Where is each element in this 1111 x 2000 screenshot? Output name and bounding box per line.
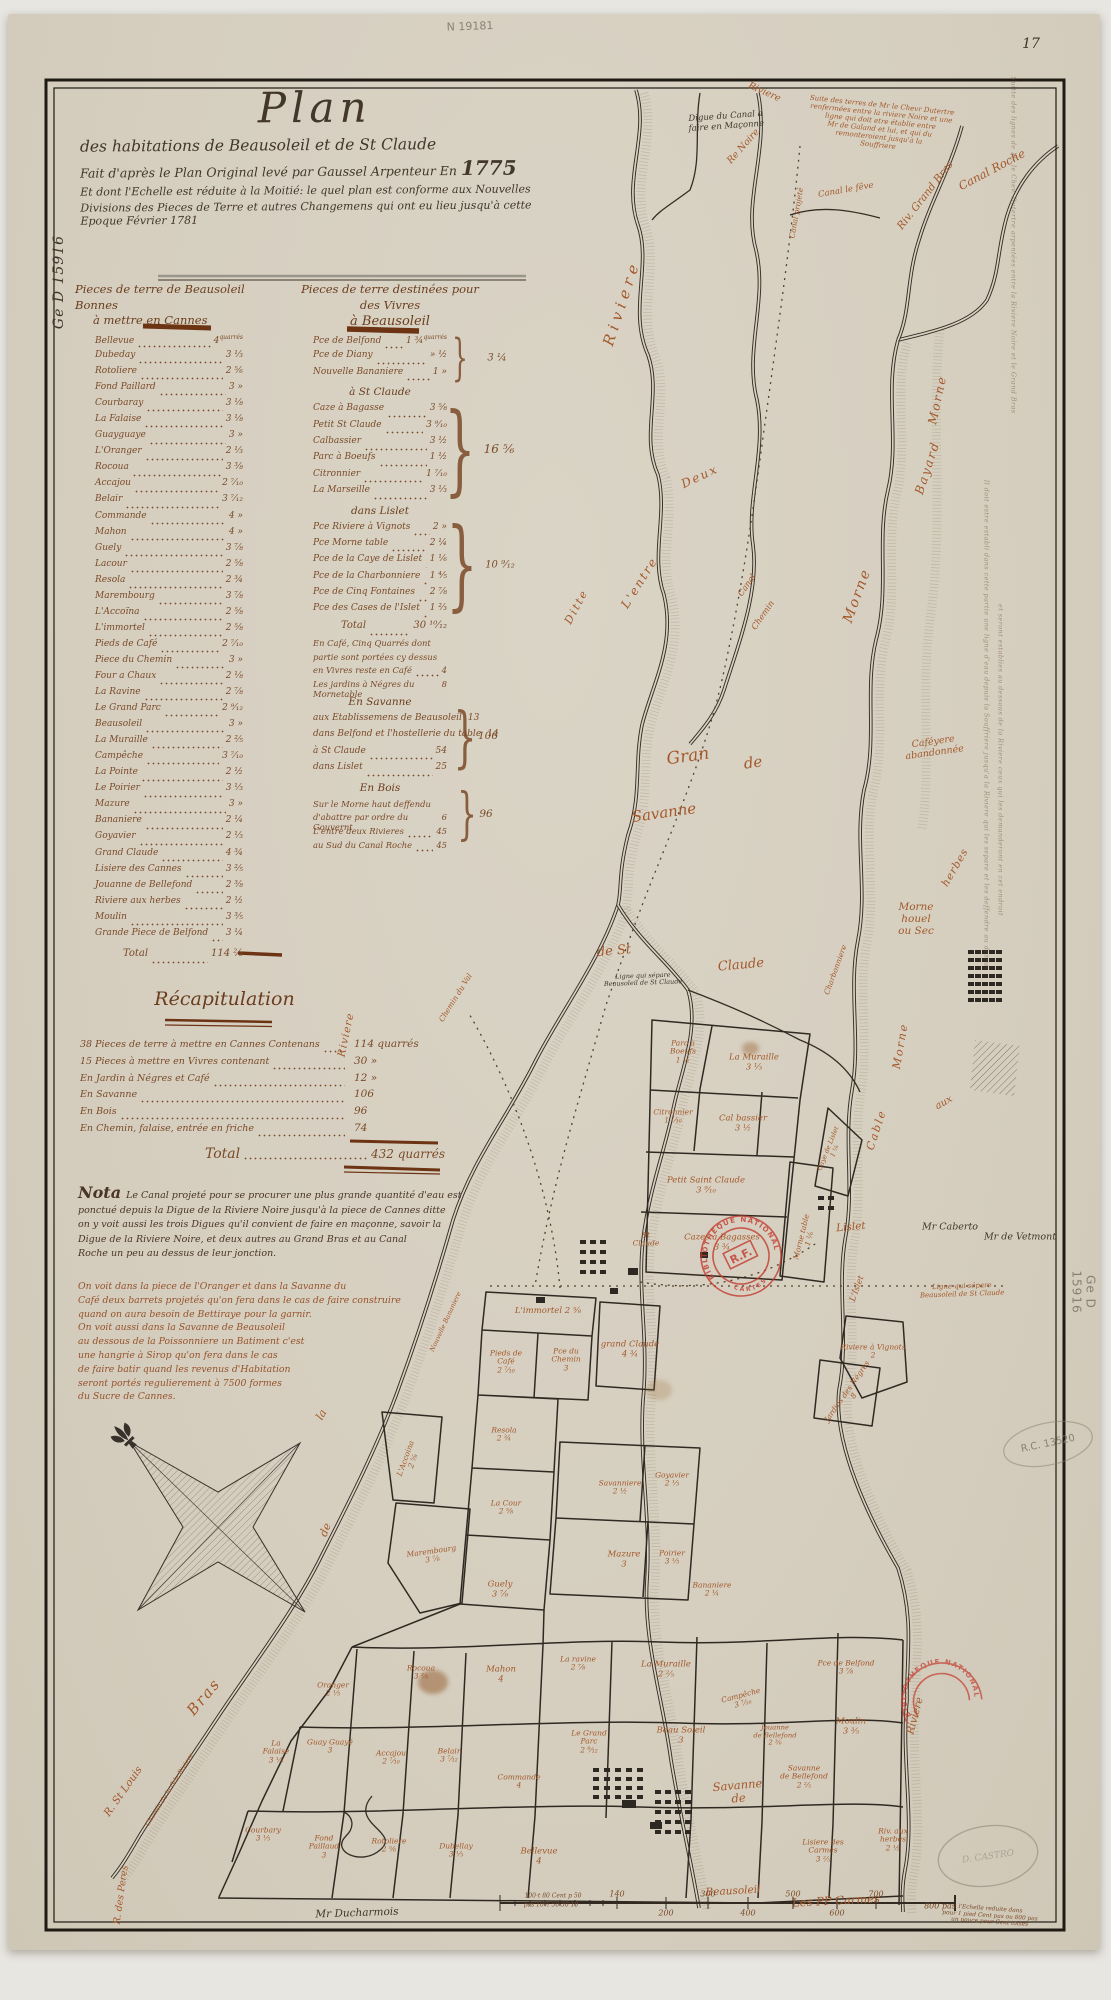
map-label: Savanniere 2 ½ [599,1480,642,1497]
map-label: Pce du Chemin 3 [551,1347,580,1372]
map-label: 300 [700,1889,715,1898]
map-label: 3 ¼ [487,352,506,363]
map-label: 500 [785,1889,800,1898]
map-label: Campêche 3 ⁷⁄₁₀ [720,1687,763,1714]
map-label: Deux [679,463,720,492]
map-label: Riviere [337,1012,358,1058]
map-label: L'Islet [849,1275,867,1304]
map-label: Ge D 15916 [1069,1270,1096,1313]
map-label: Canal le fêve [818,181,875,200]
map-label: Cazes à Bagasses 3 ¾ [684,1233,760,1252]
map-label: 96 [479,809,492,821]
page: { "meta":{"folio":"17","pencil_top":"N 1… [0,0,1111,2000]
map-label: l'Echelle reduite dans pour 1 pied Cent … [942,1903,1039,1929]
map-label: Morne table 1 ⅙ [792,1213,820,1262]
map-label: La Muraille 2 ⅖ [641,1660,691,1679]
map-label: Rocoua 3 ⅜ [407,1665,435,1682]
map-label: Ligne qui sépare Beausoleil de St Claude [920,1282,1005,1301]
map-label: de [318,1522,334,1539]
map-label: Belair 3 ⁷⁄₁₂ [438,1748,461,1765]
map-label: Il doit estre establi dans cette partie … [982,480,989,971]
map-label: Savanne de [712,1777,764,1807]
map-label: Re Noire [726,127,763,166]
map-label: Canal Roche [957,147,1028,193]
map-label: L'Accoina 2 ⅝ [396,1440,425,1481]
map-label: 200 [658,1908,673,1917]
map-label: Mr Caberto [922,1223,978,1234]
map-label: Ge D 15916 [52,235,68,329]
map-label: Canal [737,573,759,599]
map-label: de St [596,943,631,961]
map-label: Riviere [905,1696,926,1736]
map-label: R. St Louis [102,1765,145,1819]
map-label: Chemin du Val [438,972,475,1023]
map-label: Caye de Lislet 1 ⅙ [816,1126,847,1175]
map-label: Le Grand Parc 2 ⁹⁄₁₂ [571,1729,606,1754]
map-label: 400 [740,1908,755,1917]
map-label: 140 [609,1889,624,1898]
map-label: Pieds de Café 2 ⁷⁄₁₀ [490,1349,522,1374]
map-label: Bellevue 4 [520,1847,557,1866]
brace-glyph: } [457,790,477,840]
map-label: 600 [829,1908,844,1917]
map-label: Dubellay 3 ⅓ [439,1843,473,1860]
map-label: 100·t 80 Cent p 50 [525,1894,582,1901]
map-label: Pce de Belfond 3 ⅞ [818,1660,875,1677]
map-label: Morne [926,374,950,426]
map-labels: RiviereDitteL'entreDeuxRiviereRe NoireRi… [0,0,1111,2000]
map-label: Riviere à Vignots 2 [840,1344,905,1361]
map-label: Riv. aux herbes 2 ½ [878,1827,908,1852]
map-label: Ditte [563,587,592,626]
map-label: Poirier 3 ⅓ [659,1550,685,1567]
map-label: La Falaise 3 ⅛ [263,1739,290,1764]
map-label: 700 [868,1889,883,1898]
map-label: Morne [891,1022,911,1070]
map-label: Nouvelle Bananiere [429,1291,463,1353]
map-label: Caféyere abandonnée [903,733,964,762]
map-label: Oranger 2 ⅓ [317,1682,349,1699]
map-label: Riv. Grand Bras [896,159,957,232]
map-label: Lislet [836,1221,866,1235]
map-label: Beausoleil [705,1885,760,1900]
map-label: Guay Guayé 3 [307,1739,353,1756]
map-label: aux [933,1094,954,1113]
map-label: La ravine 2 ⅞ [560,1656,596,1673]
map-label: Fond Paillaud 3 [309,1834,339,1859]
map-label: Chemin [751,600,778,633]
map-label: Savanne de Bellefond 2 ⅖ [780,1764,828,1789]
map-label: et seront establies au dessous de la Riv… [996,604,1003,916]
map-label: Claude [717,957,764,976]
map-label: Commande 4 [497,1774,540,1791]
map-label: Lisiere des Carmes 3 ⅖ [802,1838,844,1863]
map-label: Ligne qui sépare Beausoleil de St Claude [604,971,683,988]
map-label: Savanne [631,800,698,826]
map-label: Morne [841,567,875,626]
brace-glyph: } [444,406,475,494]
map-label: de [743,753,764,772]
map-label: Chemin de la Gde Riviere [145,1752,196,1827]
map-label: Gran [665,745,710,770]
map-label: Mr Ducharmois [315,1907,399,1922]
map-label: 10 ⁹⁄₁₂ [485,559,515,570]
map-label: Bananiere 2 ¼ [693,1582,732,1599]
map-label: Cal bassier 3 ½ [719,1114,767,1133]
map-label: grand Claude 4 ¾ [601,1340,659,1359]
map-label: Les PP Carmes [792,1892,880,1910]
map-label: Cable [865,1108,890,1152]
brace-glyph: } [446,521,477,609]
map-label: R.C. 13520 [1020,1433,1076,1455]
map-label: 16 ⅚ [484,443,515,457]
map-label: Morne houel ou Sec [898,902,934,938]
map-label: Guely 3 ⅞ [488,1580,513,1599]
map-label: Accajou 2 ⁷⁄₁₀ [376,1750,406,1767]
brace-glyph: } [452,336,468,381]
map-label: L'entre [619,555,661,611]
map-label: La Muraille 3 ⅓ [729,1053,779,1072]
map-label: Resola 2 ¾ [491,1427,516,1444]
map-label: la [314,1408,330,1423]
map-label: R. des Peres [113,1865,132,1925]
map-label: herbes [940,847,971,890]
map-label: Suitte des lignes de Mr le Chev. Dutertr… [1009,76,1016,413]
map-label: Citronnier 1 ⁷⁄₁₀ [653,1109,692,1126]
map-label: Mr de Vetmont [984,1233,1056,1244]
map-label: Canal projeté [788,187,805,239]
map-label: 106 [478,731,498,743]
map-label: Riviere [746,81,782,105]
map-label: Mazure 3 [608,1550,641,1569]
map-label: Jouanne de Bellefond 2 ⅜ [753,1724,796,1747]
map-label: Beau Soleil 3 [657,1726,706,1745]
map-label: 800 pas [924,1901,956,1910]
map-label: Suite des terres de Mr le Chevr Dutertre… [805,95,954,157]
map-label: Marembourg 3 ⅞ [406,1544,458,1568]
map-label: Mahon 4 [486,1665,516,1684]
map-label: Petit Saint Claude 3 ⁹⁄₁₀ [667,1176,745,1195]
map-label: Charbonniere [823,944,849,996]
map-label: St Claude [633,1232,660,1249]
map-label: Digue du Canal a faire en Maçonne [688,110,765,134]
map-label: Jardins des Négres 8 [823,1359,878,1428]
map-label: Parc à Boeufs 1 ½ [670,1039,696,1064]
map-label: Riviere [600,258,644,348]
map-label: La Cour 2 ⅝ [491,1500,522,1517]
map-label: 17 [1022,37,1040,53]
map-label: N 19181 [446,20,493,34]
map-label: Bras [184,1675,225,1719]
map-label: Courbary 3 ⅓ [245,1827,281,1844]
map-label: Moulin 3 ⅗ [836,1717,866,1736]
map-label: Goyavier 2 ⅓ [655,1472,689,1489]
map-label: Bayard [913,440,943,497]
map-label: Rotoliere 2 ⅚ [372,1838,407,1855]
map-label: L'immortel 2 ⅝ [515,1307,581,1317]
map-label: pas 10½ 50 30 10 [524,1903,578,1910]
brace-glyph: } [453,707,476,766]
